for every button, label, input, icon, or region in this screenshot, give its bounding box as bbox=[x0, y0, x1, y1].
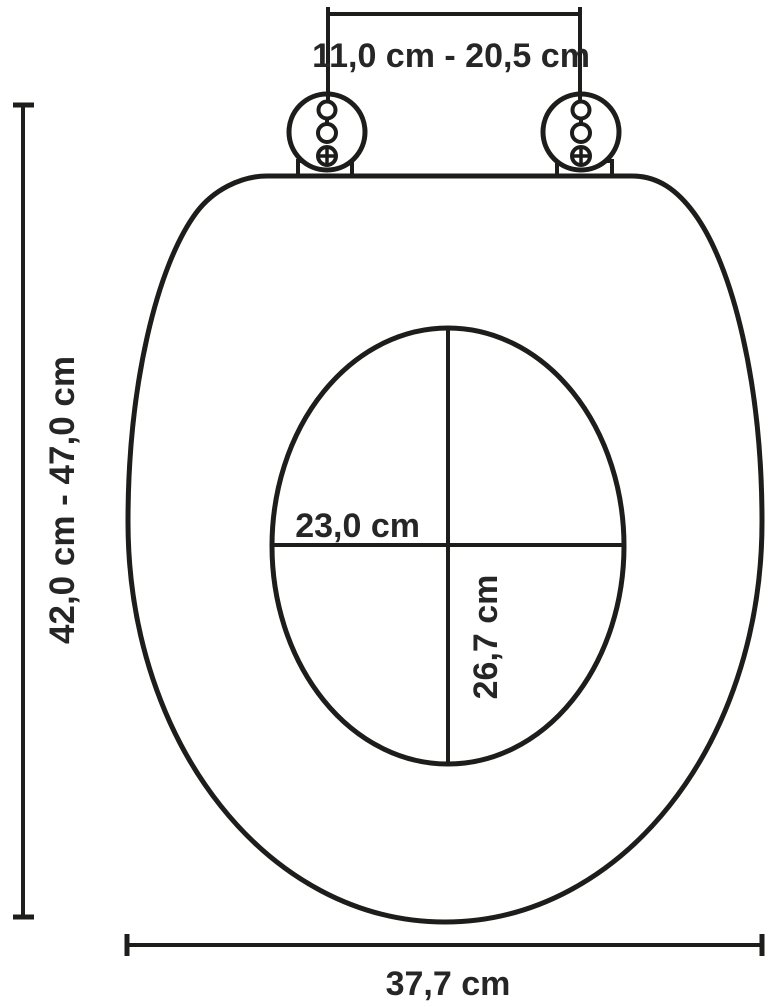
total-length-label: 42,0 cm - 47,0 cm bbox=[43, 356, 82, 644]
dimension-total-width: 37,7 cm bbox=[127, 934, 762, 1003]
hinge-distance-label: 11,0 cm - 20,5 cm bbox=[312, 37, 590, 75]
dimension-hinge-distance: 11,0 cm - 20,5 cm bbox=[312, 7, 590, 102]
inner-width-label: 23,0 cm bbox=[295, 507, 420, 545]
seat-body bbox=[128, 94, 762, 922]
total-width-label: 37,7 cm bbox=[386, 965, 511, 1003]
toilet-seat-dimension-diagram: 11,0 cm - 20,5 cm 42,0 cm - 47,0 cm 23,0… bbox=[0, 0, 778, 1007]
diagram-svg: 11,0 cm - 20,5 cm 42,0 cm - 47,0 cm 23,0… bbox=[0, 0, 778, 1007]
dimension-total-length: 42,0 cm - 47,0 cm bbox=[13, 105, 82, 917]
inner-length-label: 26,7 cm bbox=[467, 575, 505, 700]
